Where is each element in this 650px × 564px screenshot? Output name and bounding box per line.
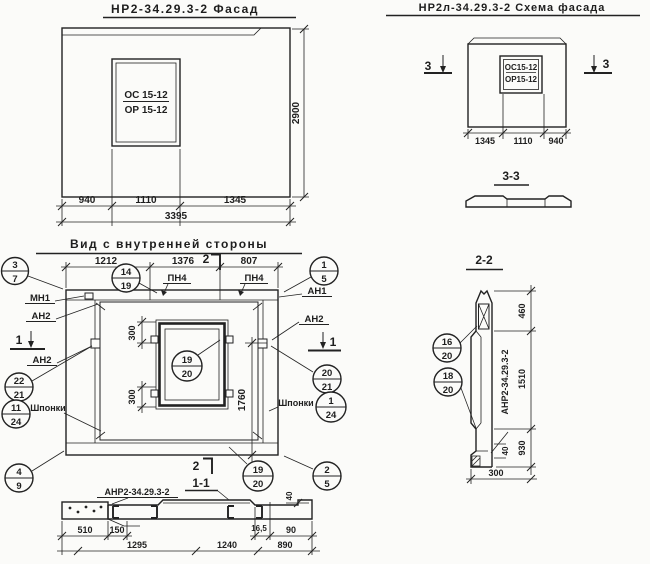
facade-scheme: НР2л-34.29.3-2 Схема фасада ОС15-12 ОР15… (386, 2, 640, 146)
label-shponki-right: Шпонки (278, 398, 313, 408)
arrowhead-icon (28, 341, 34, 348)
scheme-window-label-bottom: ОР15-12 (505, 75, 538, 84)
section-mark-3-right: 3 (603, 57, 610, 71)
section-1-1-ref: 1-1 (192, 476, 210, 490)
leader-line (279, 294, 302, 297)
dim-3395: 3395 (165, 211, 188, 222)
arrowhead-icon (320, 342, 326, 349)
svg-text:3: 3 (12, 260, 17, 271)
svg-text:18: 18 (443, 371, 454, 382)
dim-40-label: 40 (285, 491, 294, 500)
dim-510: 510 (77, 525, 92, 535)
svg-text:19: 19 (121, 281, 132, 292)
end-block (62, 502, 108, 519)
lifting-loop-mn1 (85, 293, 93, 299)
scheme-top-edge (468, 38, 566, 44)
window-key-tab (151, 390, 158, 397)
label-pn4-left: ПН4 (168, 273, 188, 284)
label-shponki-left: Шпонки (30, 403, 65, 413)
svg-text:1: 1 (321, 260, 327, 271)
arrowhead-icon (591, 66, 597, 73)
callout-4-9: 4 9 (5, 451, 64, 492)
facade-window-label-top: ОС 15-12 (124, 90, 168, 101)
channel-marks (113, 506, 262, 518)
callout-1-24-shponki: 1 24 Шпонки (269, 392, 346, 422)
section-3-3-profile (466, 196, 571, 207)
label-mn1: МН1 (30, 293, 51, 304)
svg-text:14: 14 (121, 267, 132, 278)
dim-1212: 1212 (95, 256, 118, 267)
section-1-1-label: АНР2-34.29.3-2 (104, 487, 169, 497)
dim-940: 940 (548, 136, 563, 146)
section-2-2: 2-2 16 20 18 20 АНР2-34.29.3-2 460 1510 … (433, 253, 537, 484)
cut-mark-1-right: 1 (330, 335, 337, 349)
section-3-3: 3-3 (466, 169, 571, 207)
svg-text:9: 9 (16, 481, 21, 492)
section-2-2-item-label: АНР2-34.29.3-2 (500, 349, 510, 414)
dim-1110: 1110 (135, 195, 157, 206)
inner-view: Вид с внутренней стороны 1212 1376 807 2 (2, 237, 347, 492)
dim-1376: 1376 (172, 256, 195, 267)
label-an1: АН1 (307, 286, 327, 297)
key-tab-left (91, 339, 100, 348)
svg-text:20: 20 (442, 351, 453, 362)
cut-mark-2-top: 2 (203, 252, 210, 266)
section-2-2-title: 2-2 (475, 253, 493, 267)
label-an2-left-lower: АН2 (32, 355, 51, 366)
svg-text:11: 11 (11, 403, 22, 414)
section-mark-3-left: 3 (425, 59, 432, 73)
callout-2-5: 2 5 (284, 456, 341, 490)
callout-18-20: 18 20 (434, 368, 476, 428)
dim-460: 460 (517, 303, 527, 318)
window-key-tab (226, 336, 233, 343)
dim-300: 300 (488, 468, 503, 478)
label-an2-left-top: АН2 (31, 311, 50, 322)
svg-text:20: 20 (182, 369, 193, 380)
label-pn4-right: ПН4 (245, 273, 265, 284)
cut-mark-1-left: 1 (16, 333, 23, 347)
svg-text:24: 24 (326, 410, 337, 421)
label-an2-right: АН2 (304, 314, 323, 325)
dim-1240: 1240 (217, 540, 237, 550)
svg-text:22: 22 (14, 376, 25, 387)
dim-2900: 2900 (291, 101, 302, 124)
dim-1510: 1510 (517, 369, 527, 389)
svg-text:5: 5 (321, 274, 327, 285)
dim-300-lower-label: 300 (127, 389, 137, 404)
arrowhead-icon (440, 66, 446, 73)
scheme-title: НР2л-34.29.3-2 Схема фасада (419, 2, 606, 14)
section-3-3-title: 3-3 (502, 169, 520, 183)
svg-text:16: 16 (442, 337, 453, 348)
inner-panel-outline (66, 290, 278, 455)
svg-text:7: 7 (12, 274, 17, 285)
dim-1110: 1110 (513, 136, 532, 146)
dim-90: 90 (286, 525, 296, 535)
panel-drawing: НР2-34.29.3-2 Фасад ОС 15-12 ОР 15-12 94… (0, 0, 650, 564)
dim-40-label: 40 (501, 446, 510, 455)
dim-940: 940 (79, 195, 96, 206)
dim-16-5: 16,5 (251, 524, 267, 533)
inner-view-title: Вид с внутренней стороны (70, 237, 268, 251)
cut-mark-2-bottom: 2 (193, 459, 200, 473)
dim-890: 890 (277, 540, 292, 550)
svg-text:20: 20 (443, 385, 454, 396)
drawing-sheet: НР2-34.29.3-2 Фасад ОС 15-12 ОР 15-12 94… (0, 0, 650, 564)
callout-3-7: 3 7 (2, 258, 64, 290)
cut-mark-symbol (203, 459, 212, 475)
svg-text:4: 4 (16, 467, 22, 478)
svg-text:19: 19 (182, 355, 193, 366)
profile-detail (476, 331, 488, 451)
section-1-1: АНР2-34.29.3-2 40 510 150 16,5 90 1295 1… (57, 487, 320, 555)
dim-807: 807 (241, 256, 258, 267)
scheme-window-label-top: ОС15-12 (505, 63, 538, 72)
facade-window-label-bottom: ОР 15-12 (125, 105, 168, 116)
window-key-tab (151, 336, 158, 343)
foot-hatch (472, 456, 480, 466)
dim-1760-label: 1760 (237, 388, 248, 411)
svg-text:19: 19 (253, 465, 264, 476)
facade-view: НР2-34.29.3-2 Фасад ОС 15-12 ОР 15-12 94… (56, 2, 309, 226)
dim-1345: 1345 (224, 195, 247, 206)
svg-text:20: 20 (253, 479, 264, 490)
dim-1295: 1295 (127, 540, 147, 550)
facade-title: НР2-34.29.3-2 Фасад (111, 2, 259, 16)
window-key-tab (226, 390, 233, 397)
section-2-2-profile (471, 331, 492, 467)
svg-text:5: 5 (324, 479, 330, 490)
svg-text:24: 24 (11, 417, 22, 428)
dim-300-upper-label: 300 (127, 325, 137, 340)
dim-150: 150 (109, 525, 124, 535)
callout-20-21: 20 21 (271, 346, 341, 393)
svg-text:2: 2 (324, 465, 329, 476)
svg-text:1: 1 (328, 396, 334, 407)
svg-text:20: 20 (322, 368, 333, 379)
dim-1345: 1345 (475, 136, 495, 146)
key-tab-right (258, 339, 267, 348)
dim-930: 930 (517, 440, 527, 455)
